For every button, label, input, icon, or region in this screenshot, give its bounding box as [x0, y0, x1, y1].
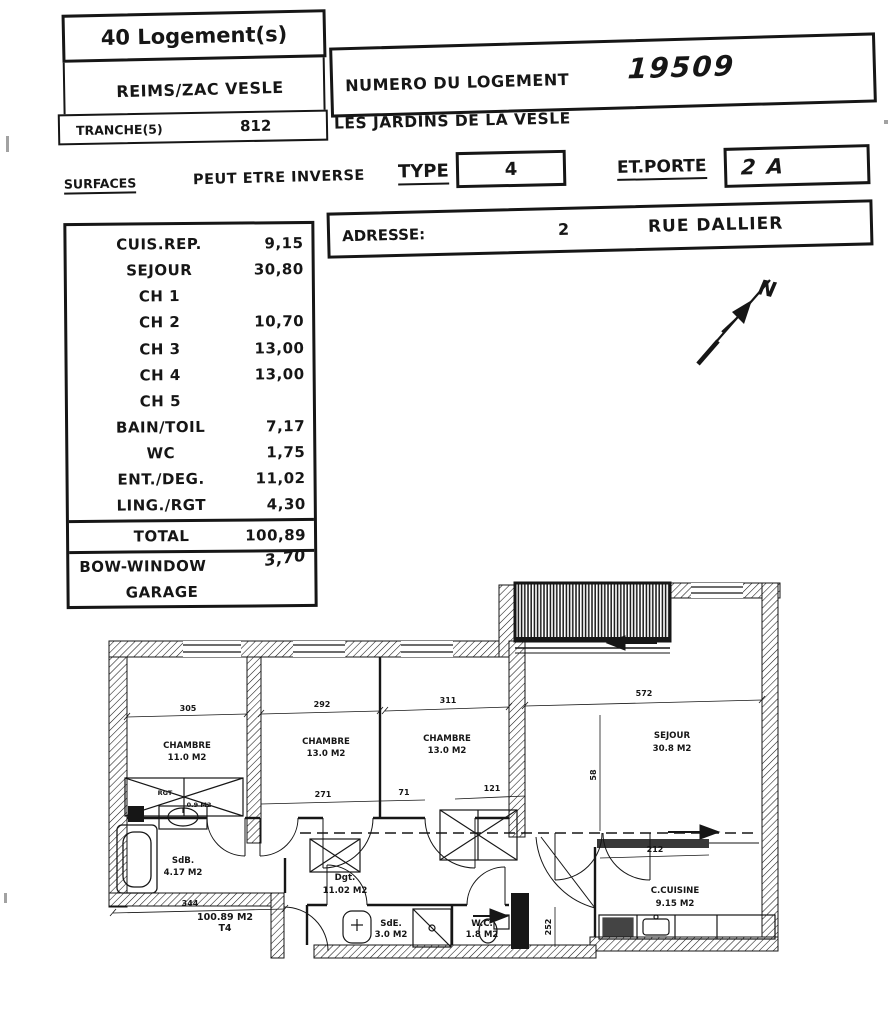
total-value: 100,89 [245, 526, 306, 545]
room-area: 11.02 M2 [323, 886, 368, 896]
scan-speck [6, 136, 9, 152]
row-value: 13,00 [255, 365, 305, 383]
dim-sejour: 572 [636, 689, 653, 698]
shower-sink [343, 911, 371, 943]
plan-total-area: 100.89 M2 [197, 912, 253, 923]
room-area: 30.8 M2 [653, 744, 692, 754]
plan-type-code: T4 [218, 923, 231, 934]
dim-ch2: 292 [314, 700, 331, 709]
table-row: ENT./DEG.11,02 [68, 465, 313, 493]
dim-kitchen: 212 [647, 845, 664, 854]
tranche-value: 812 [240, 117, 272, 136]
address-box: ADRESSE: 2 RUE DALLIER [327, 199, 874, 258]
total-label: TOTAL [69, 526, 254, 546]
table-row: CH 313,00 [67, 334, 312, 362]
row-label: CH 2 [67, 313, 252, 333]
row-label: SEJOUR [67, 261, 252, 281]
room-area: 0.9 M2 [187, 801, 212, 809]
room-area: 13.0 M2 [307, 749, 346, 759]
room-area: 9.15 M2 [656, 899, 695, 909]
table-row: CH 5 [68, 387, 313, 415]
units-count-box: 40 Logement(s) [62, 9, 327, 63]
kitchen-appliances [599, 915, 775, 939]
type-value-box: 4 [456, 150, 567, 188]
row-label: CH 1 [67, 287, 252, 307]
room-name: RGT [158, 789, 173, 797]
row-value: 7,17 [266, 417, 305, 435]
row-label: WC [68, 444, 253, 464]
type-label: TYPE [398, 161, 449, 186]
tranche-box: TRANCHE(5) 812 [58, 110, 328, 146]
shower [413, 909, 451, 947]
inverse-note: PEUT ETRE INVERSE [193, 168, 365, 188]
tranche-label: TRANCHE(5) [76, 122, 163, 139]
room-name: C.CUISINE [651, 886, 700, 896]
room-name: Dgt. [335, 873, 356, 883]
dim-hall3: 121 [484, 784, 501, 793]
dim-hall: 271 [315, 790, 332, 799]
bath-unit [128, 806, 144, 822]
room-area: 3.0 M2 [375, 930, 408, 940]
room-name: CHAMBRE [423, 734, 471, 744]
room-area: 4.17 M2 [164, 868, 203, 878]
room-name: SdB. [172, 856, 194, 866]
unit-number-box: NUMERO DU LOGEMENT 19509 [329, 32, 877, 117]
table-row: BAIN/TOIL7,17 [68, 413, 313, 441]
table-row: CUIS.REP.9,15 [66, 230, 311, 258]
room-name: W.C. [471, 919, 493, 929]
address-number: 2 [558, 220, 570, 239]
scan-speck [884, 120, 888, 124]
table-row: CH 210,70 [67, 308, 312, 336]
floor-plan: 305 292 311 572 271 71 121 212 344 58 25… [95, 575, 795, 975]
bow-window-value: 3,70 [263, 546, 307, 570]
row-label: CH 3 [67, 339, 252, 359]
row-value: 13,00 [254, 339, 304, 357]
north-arrow-icon: N [690, 256, 805, 368]
door-label: ET.PORTE [617, 156, 707, 181]
row-label: CH 5 [68, 391, 253, 411]
row-label: LING./RGT [69, 496, 254, 516]
surfaces-label: SURFACES [64, 175, 137, 194]
north-label: N [756, 275, 779, 302]
plan-summary: 100.89 M2 T4 [197, 912, 253, 934]
dim-ch3: 311 [440, 696, 457, 705]
row-label: ENT./DEG. [68, 470, 253, 490]
table-row: SEJOUR30,80 [67, 256, 312, 284]
scan-speck [4, 893, 7, 903]
dim-hall2: 71 [398, 788, 410, 797]
bow-window-label: BOW-WINDOW [69, 556, 254, 576]
row-value: 30,80 [254, 260, 304, 278]
row-value: 4,30 [267, 495, 306, 513]
table-row: LING./RGT4,30 [69, 491, 314, 519]
address-label: ADRESSE: [342, 225, 425, 245]
dim-bottom: 344 [182, 899, 199, 908]
units-count: 40 Logement(s) [101, 22, 288, 50]
row-label: CH 4 [68, 365, 253, 385]
table-row: WC1,75 [68, 439, 313, 467]
surfaces-table: CUIS.REP.9,15 SEJOUR30,80 CH 1 CH 210,70… [63, 221, 317, 609]
unit-number-label: NUMERO DU LOGEMENT [345, 70, 569, 95]
dim-v-sejour: 58 [589, 769, 598, 781]
room-name: SdE. [380, 919, 401, 929]
row-value: 10,70 [254, 312, 304, 330]
type-value: 4 [505, 158, 518, 179]
room-name: CHAMBRE [163, 741, 211, 751]
room-area: 1.8 M2 [466, 930, 499, 940]
room-name: CHAMBRE [302, 737, 350, 747]
door-value-box: 2 A [724, 144, 871, 188]
door-value: 2 A [740, 154, 786, 179]
unit-number-value: 19509 [627, 49, 736, 85]
scanned-housing-sheet: 40 Logement(s) REIMS/ZAC VESLE TRANCHE(5… [0, 0, 891, 1024]
row-label: BAIN/TOIL [68, 418, 253, 438]
row-value: 9,15 [264, 234, 303, 252]
room-area: 13.0 M2 [428, 746, 467, 756]
room-area: 11.0 M2 [168, 753, 207, 763]
kitchen-bar [597, 839, 759, 848]
row-value: 11,02 [256, 469, 306, 487]
table-row: CH 1 [67, 282, 312, 310]
dim-ch1: 305 [180, 704, 197, 713]
dim-v-kitchen: 252 [544, 919, 553, 936]
address-street: RUE DALLIER [648, 214, 784, 237]
row-label: CUIS.REP. [66, 235, 251, 255]
duct [511, 893, 529, 949]
row-value: 1,75 [266, 443, 305, 461]
table-row: CH 413,00 [68, 361, 313, 389]
room-name: SEJOUR [654, 731, 691, 741]
